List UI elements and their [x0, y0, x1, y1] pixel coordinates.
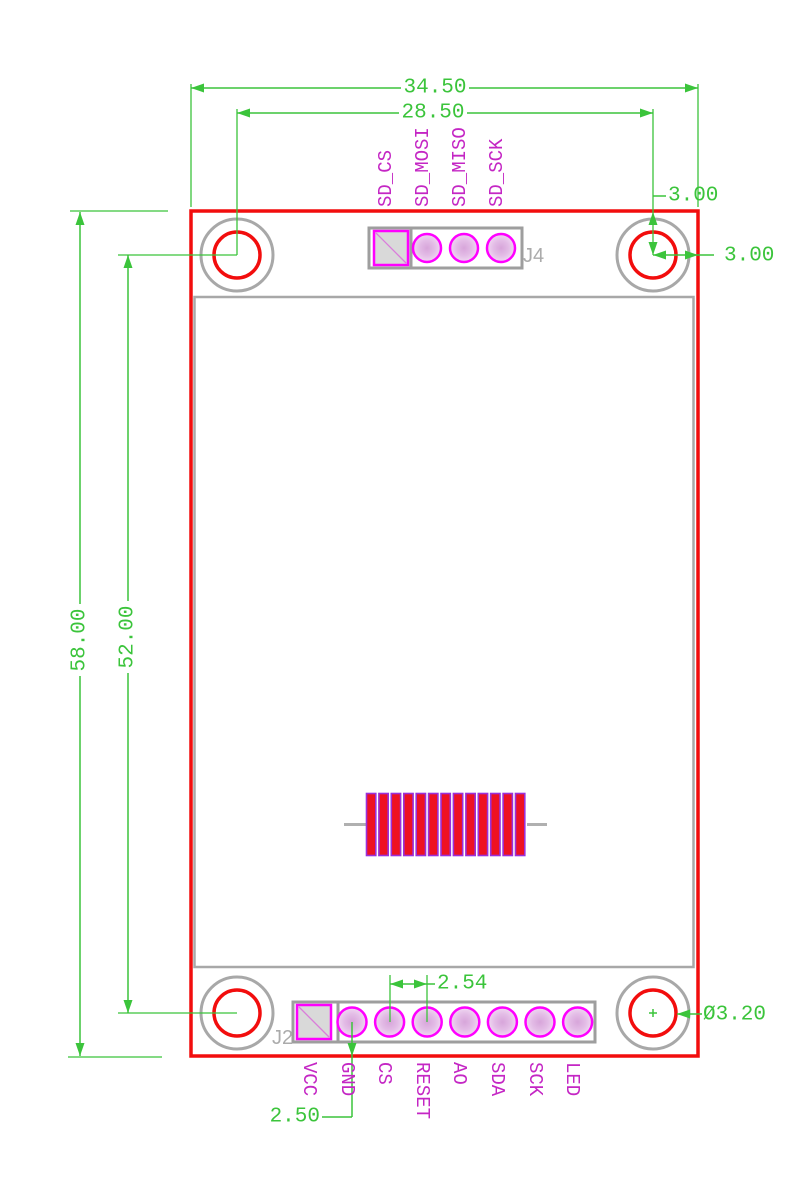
- fpc-pad: [391, 794, 400, 856]
- fpc-pad: [491, 794, 500, 856]
- fpc-pad: [503, 794, 512, 856]
- pad-round: [526, 1008, 555, 1037]
- pad-round: [413, 234, 441, 262]
- drawing-canvas: J4 J2 3: [0, 0, 810, 1197]
- dimension-overall-width: 34.50: [191, 77, 698, 208]
- pin-label-led: LED: [561, 1062, 583, 1096]
- pin-label-sck: SCK: [524, 1062, 546, 1097]
- pad-round: [487, 234, 515, 262]
- pin-label-cs: CS: [373, 1062, 395, 1085]
- dim-text-overall-height: 58.00: [69, 608, 92, 671]
- fpc-pad: [478, 794, 487, 856]
- j2-refdes: J2: [272, 1027, 293, 1049]
- fpc-pad: [453, 794, 462, 856]
- dim-text-overall-width: 34.50: [403, 77, 466, 100]
- pad-round: [563, 1008, 592, 1037]
- fpc-pad: [416, 794, 425, 856]
- pad-round: [488, 1008, 517, 1037]
- dim-text-hole-span-width: 28.50: [401, 102, 464, 125]
- pin-label-ao: AO: [448, 1062, 470, 1085]
- pin-label-sd-mosi: SD_MOSI: [412, 127, 434, 207]
- fpc-pad: [367, 794, 376, 856]
- dim-text-pin-to-edge: 2.50: [270, 1106, 320, 1129]
- dim-text-hole-offset-top: 3.00: [668, 185, 718, 208]
- fpc-pad: [441, 794, 450, 856]
- fpc-pad: [379, 794, 388, 856]
- dim-text-pin-pitch: 2.54: [437, 973, 487, 996]
- fpc-pad: [516, 794, 525, 856]
- fpc-pad: [429, 794, 438, 856]
- pin-label-sd-sck: SD_SCK: [486, 138, 508, 207]
- dim-text-hole-offset-right: 3.00: [724, 245, 774, 268]
- pin-label-reset: RESET: [411, 1062, 433, 1119]
- j4-refdes: J4: [523, 245, 544, 267]
- pin-label-sda: SDA: [486, 1062, 508, 1097]
- pin-label-sd-miso: SD_MISO: [449, 127, 471, 207]
- board-edge: [191, 211, 698, 1056]
- pcb-dimension-drawing: J4 J2 3: [0, 0, 810, 1197]
- fpc-connector-footprint: [344, 794, 547, 856]
- dim-text-hole-span-height: 52.00: [117, 605, 140, 668]
- j4-pin-labels: SD_CS SD_MOSI SD_MISO SD_SCK: [375, 127, 508, 207]
- board-outline: [191, 211, 698, 1056]
- j2-pin-labels: VCC GND CS RESET AO SDA SCK LED: [298, 1062, 583, 1119]
- fpc-pad: [466, 794, 475, 856]
- pin-label-sd-cs: SD_CS: [375, 150, 397, 207]
- pin-label-vcc: VCC: [298, 1062, 320, 1096]
- dim-text-hole-diameter: Ø3.20: [703, 1004, 766, 1027]
- fpc-pad: [404, 794, 413, 856]
- pad-round: [450, 1008, 479, 1037]
- pad-round: [450, 234, 478, 262]
- pin-label-gnd: GND: [336, 1062, 358, 1096]
